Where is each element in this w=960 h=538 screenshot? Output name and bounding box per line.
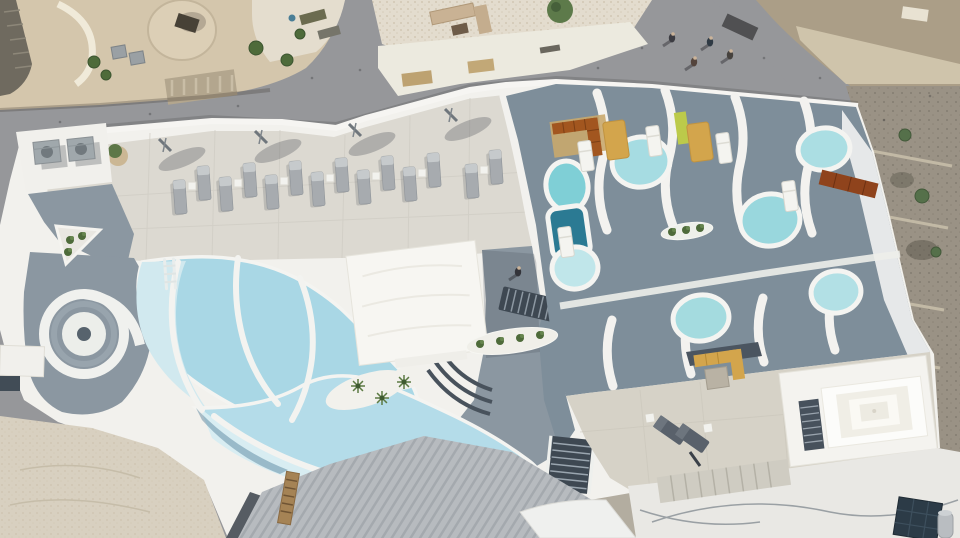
lounger-headrest (265, 175, 278, 185)
planter-plant-highlight (82, 232, 86, 236)
cylinder-top (938, 510, 952, 516)
side-table (418, 169, 426, 177)
side-table (326, 174, 334, 182)
side-table (480, 166, 488, 174)
person-head (693, 56, 697, 60)
sun-lounger (286, 161, 303, 197)
side-table (234, 179, 242, 187)
palm-plant (351, 379, 365, 393)
street-speckle (59, 121, 62, 124)
planter-plant-highlight (520, 334, 524, 338)
palm-plant (375, 391, 389, 405)
sun-lounger (308, 172, 325, 208)
shrub (931, 247, 941, 257)
white-pier (0, 345, 45, 377)
palm-plant (397, 375, 411, 389)
sun-lounger (378, 156, 395, 192)
lounger-headrest (311, 172, 324, 182)
street-speckle (883, 119, 886, 122)
lounger-headrest (197, 166, 210, 176)
mustard-mat (602, 120, 629, 161)
lounger-headrest (381, 156, 394, 166)
pot-plant (108, 144, 122, 158)
round-tower-roof (148, 0, 216, 60)
person-head (709, 36, 713, 40)
sun-lounger (194, 166, 211, 202)
lounger-headrest (357, 170, 370, 180)
lounger-headrest (335, 158, 348, 168)
sun-lounger (240, 163, 257, 199)
side-table (645, 413, 654, 422)
sun-lounger (462, 164, 479, 200)
sun-lounger (400, 167, 417, 203)
palm-crown (402, 380, 407, 385)
garden-plant (101, 70, 111, 80)
aerial-photo (0, 0, 960, 538)
street-speckle (359, 69, 362, 72)
planter-plant-highlight (68, 248, 72, 252)
planter-plant-highlight (480, 340, 484, 344)
stone-block (705, 367, 730, 390)
side-table (188, 182, 196, 190)
ac-unit-small (129, 51, 145, 65)
street-speckle (149, 113, 152, 116)
street-speckle (763, 57, 766, 60)
garden-plant (295, 29, 305, 39)
person-head (671, 32, 675, 36)
planter-plant-highlight (70, 236, 74, 240)
planter-plant-highlight (686, 226, 690, 230)
street-speckle (597, 67, 600, 70)
tiny-plunge-pool (289, 15, 296, 22)
planter-plant-highlight (672, 228, 676, 232)
sun-lounger (486, 150, 503, 186)
ac-unit-small (111, 45, 127, 59)
garden-plant (88, 56, 100, 68)
street-speckle (929, 95, 932, 98)
rock-shadow (890, 172, 914, 188)
spiral-center-hole (77, 327, 91, 341)
shrub (899, 129, 911, 141)
mustard-mat (686, 122, 713, 163)
side-table (372, 172, 380, 180)
lounger-headrest (465, 164, 478, 174)
person-head (729, 49, 733, 53)
shrub (915, 189, 929, 203)
lounger-headrest (243, 163, 256, 173)
garden-plant (281, 54, 293, 66)
garden-plant (249, 41, 263, 55)
street-speckle (237, 105, 240, 108)
palm-crown (380, 396, 385, 401)
palm-crown (356, 384, 361, 389)
street-speckle (641, 47, 644, 50)
lounger-headrest (403, 167, 416, 177)
lounger-headrest (289, 161, 302, 171)
skylight-roof (779, 355, 937, 466)
street-speckle (819, 77, 822, 80)
sun-lounger (354, 170, 371, 206)
person-head (517, 266, 521, 270)
sun-lounger (216, 177, 233, 213)
sun-lounger (170, 180, 187, 216)
lounger-headrest (173, 180, 186, 190)
side-table (280, 177, 288, 185)
lounger-headrest (489, 150, 502, 160)
planter-plant-highlight (540, 331, 544, 335)
planter-plant-highlight (500, 337, 504, 341)
street-speckle (311, 77, 314, 80)
solar-panel (893, 497, 942, 538)
lounger-headrest (219, 177, 232, 187)
side-table (703, 423, 712, 432)
sun-lounger (424, 153, 441, 189)
lounger-headrest (427, 153, 440, 163)
planter-plant-highlight (700, 224, 704, 228)
sun-lounger (262, 175, 279, 211)
aerial-photo-svg (0, 0, 960, 538)
sun-lounger (332, 158, 349, 194)
dark-utility-box (0, 376, 20, 391)
tree-canopy-core (551, 2, 561, 12)
